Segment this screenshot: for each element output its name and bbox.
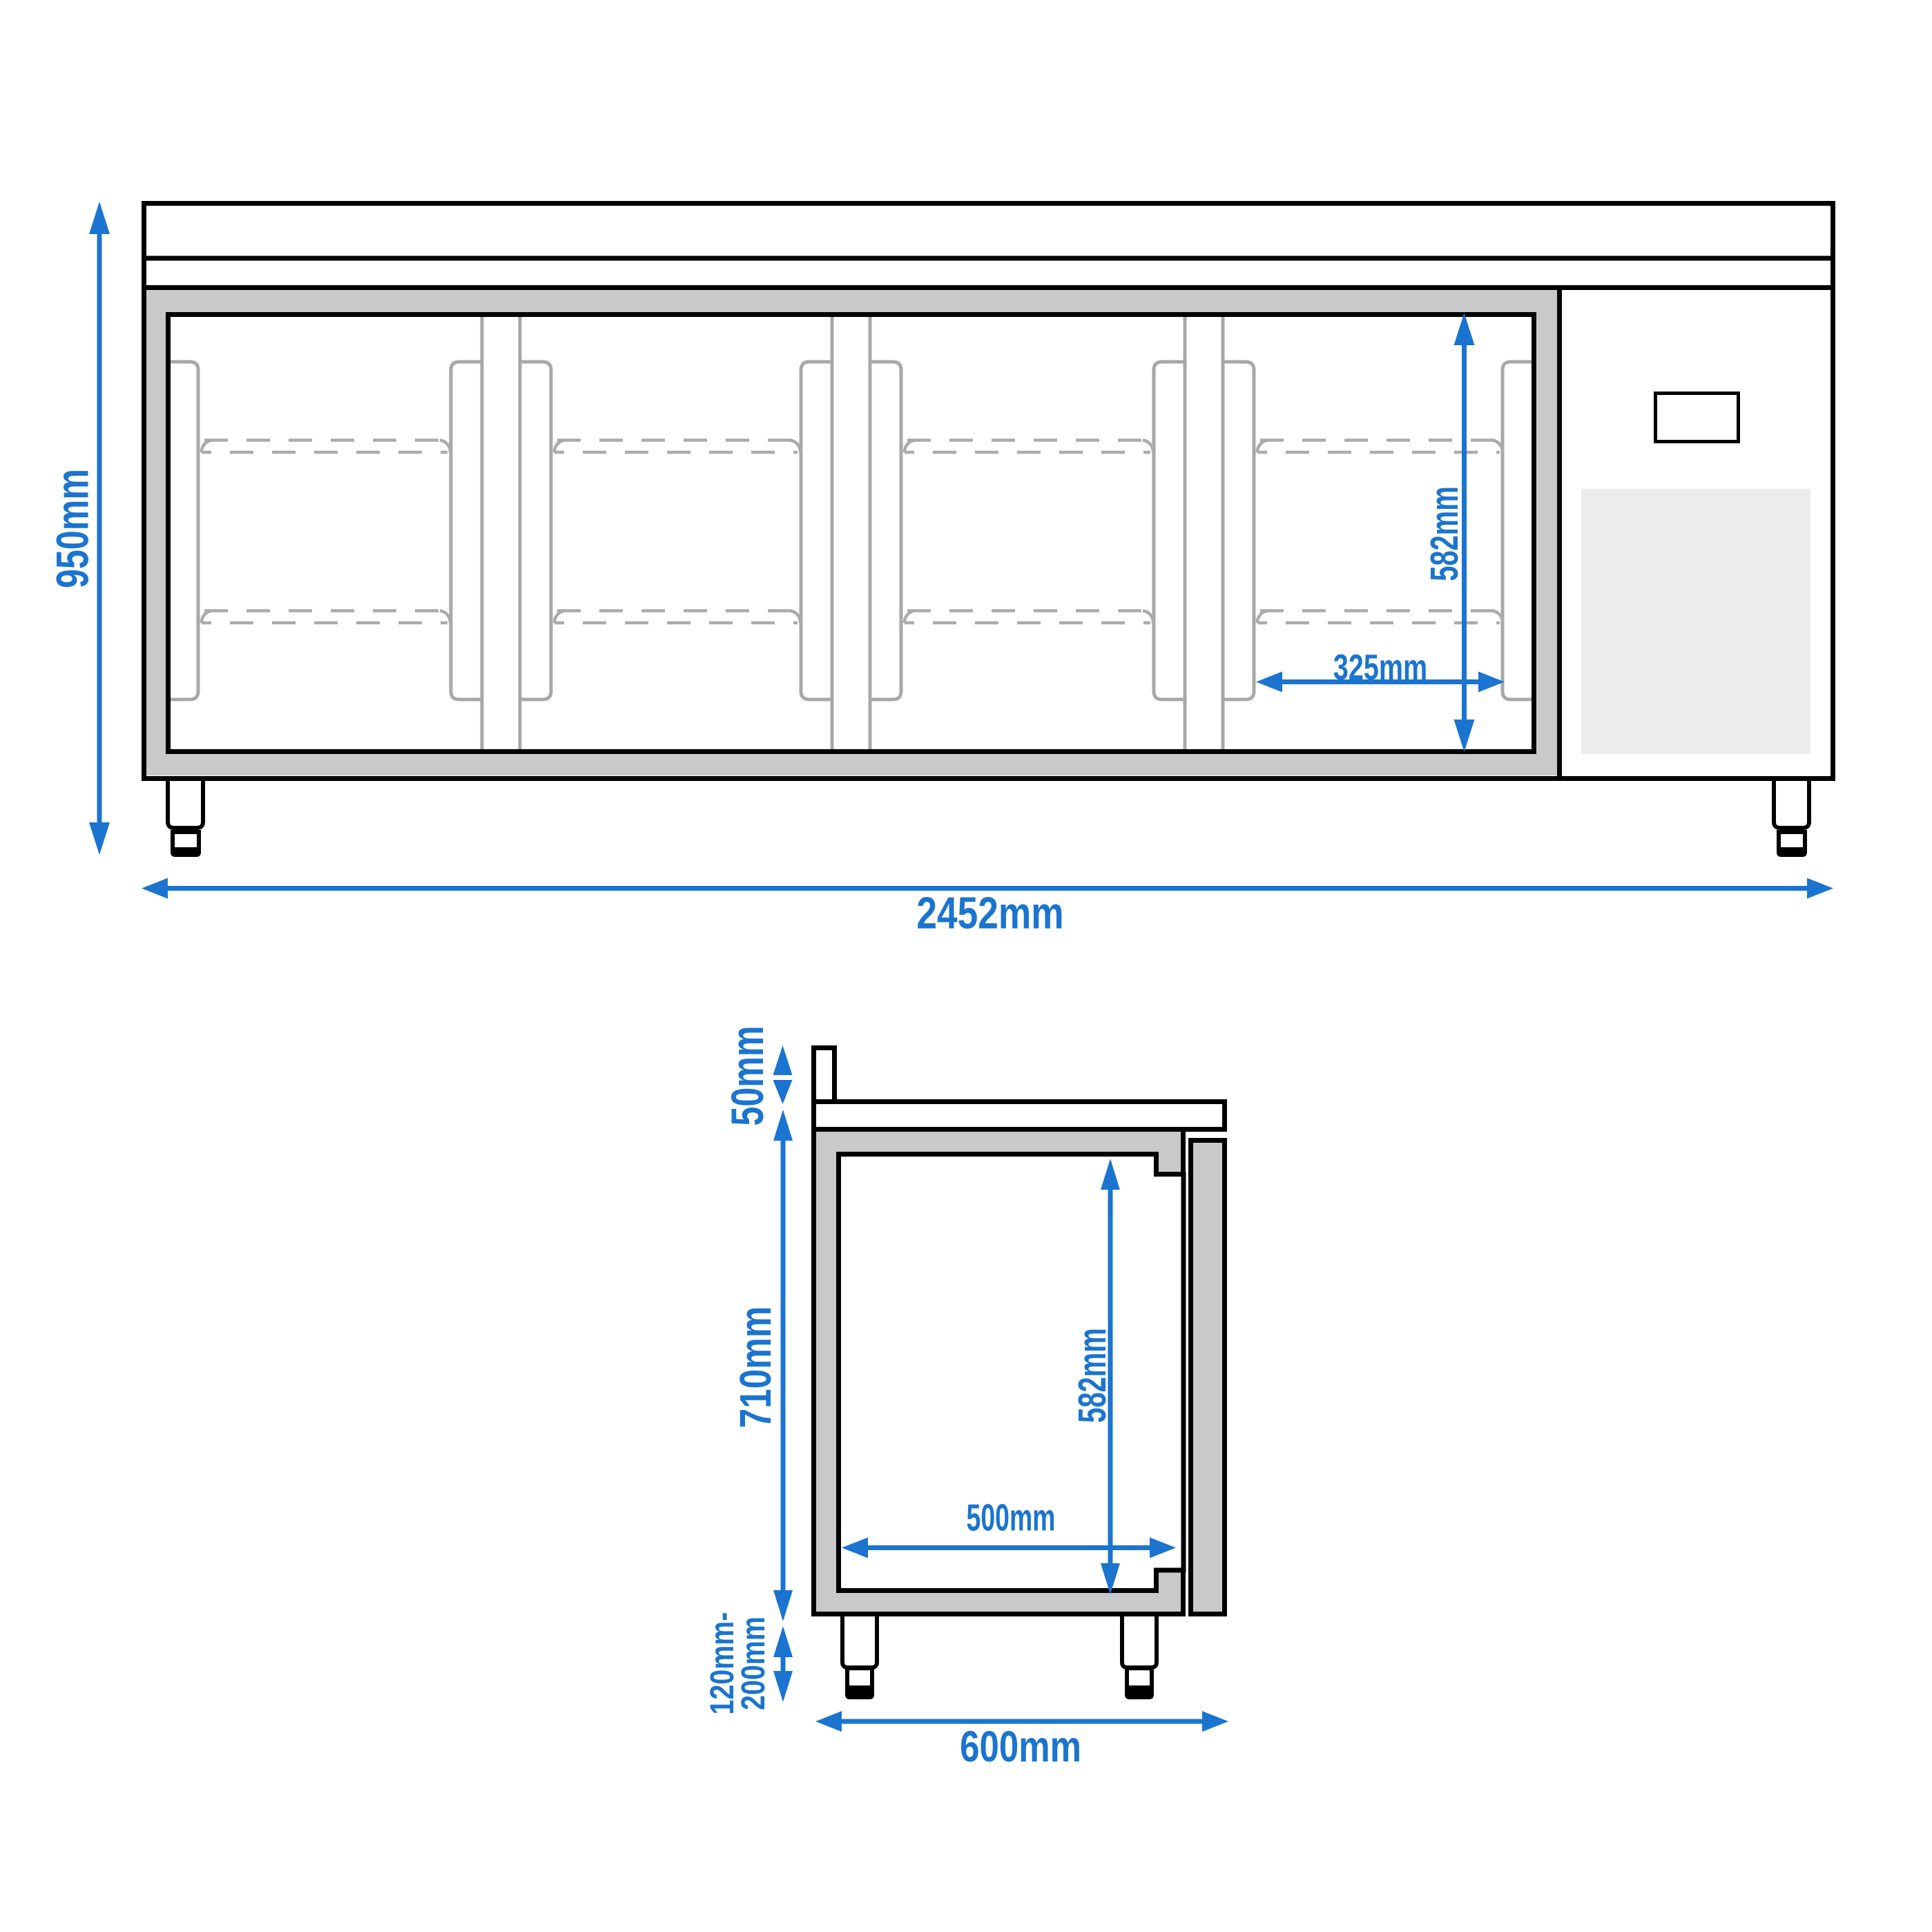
svg-text:200mm: 200mm	[735, 1616, 772, 1710]
svg-text:325mm: 325mm	[1333, 647, 1427, 688]
svg-text:582mm: 582mm	[1070, 1328, 1114, 1423]
svg-text:2452mm: 2452mm	[916, 887, 1063, 938]
svg-text:710mm: 710mm	[732, 1306, 781, 1428]
svg-text:50mm: 50mm	[722, 1026, 773, 1126]
svg-text:500mm: 500mm	[967, 1496, 1056, 1538]
svg-text:950mm: 950mm	[48, 469, 98, 588]
svg-text:582mm: 582mm	[1422, 486, 1467, 581]
svg-text:600mm: 600mm	[960, 1723, 1081, 1771]
